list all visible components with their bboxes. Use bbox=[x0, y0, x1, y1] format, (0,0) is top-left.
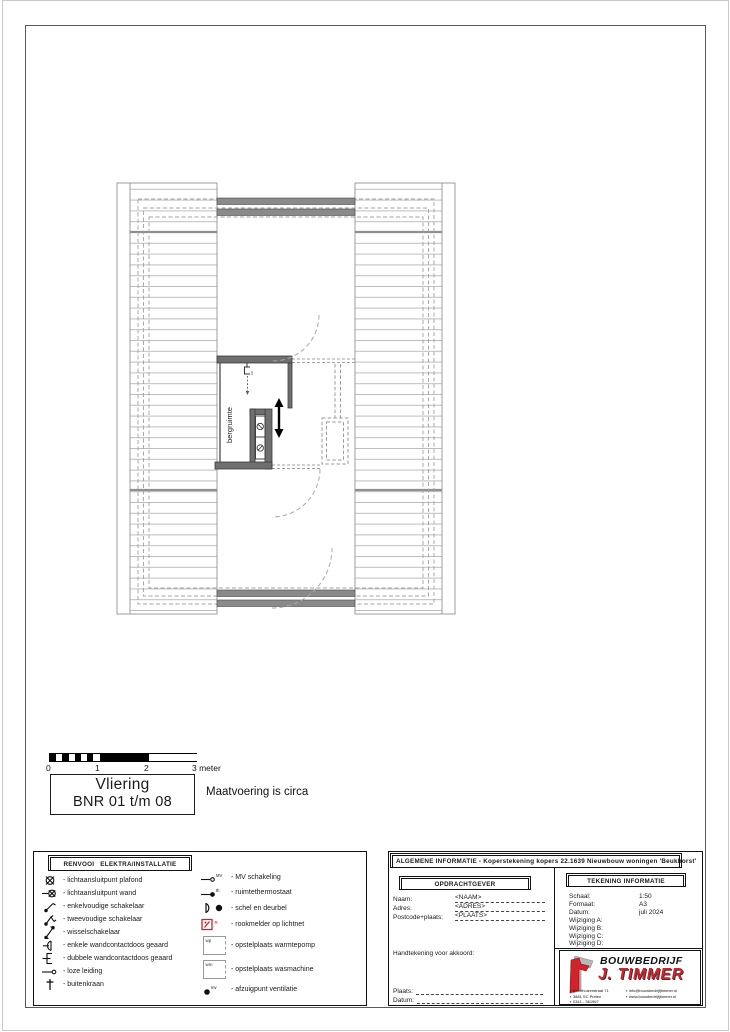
legend-label: - enkelvoudige schakelaar bbox=[63, 903, 144, 910]
scale-tick-2: 2 bbox=[144, 763, 149, 773]
legend-item: - wisselschakelaar bbox=[37, 926, 195, 939]
field-postcode-plaats: Postcode+plaats: <PLAATS> bbox=[393, 912, 549, 921]
doorbell-icon bbox=[197, 901, 231, 915]
legend-item: - lichtaansluitpunt wand bbox=[37, 887, 195, 900]
ceiling-light-icon bbox=[37, 874, 63, 887]
svg-text:MV: MV bbox=[216, 873, 222, 878]
logo-contact-right: info@bouwbedrijfjtimmer.nl www.bouwbedri… bbox=[626, 988, 677, 999]
legend-item: mv - afzuigpunt ventilatie bbox=[197, 981, 365, 998]
tekening-row: Wijziging C: bbox=[569, 933, 639, 940]
tekening-title: TEKENING INFORMATIE bbox=[568, 875, 684, 887]
tekening-row: Schaal: 1:50 bbox=[569, 893, 652, 900]
scale-bar bbox=[49, 753, 197, 762]
legend-item: - schel en deurbel bbox=[197, 900, 365, 916]
tekening-row: Wijziging A: bbox=[569, 917, 639, 924]
logo-name-bottom: J. TIMMER bbox=[598, 966, 684, 984]
two-way-switch-icon bbox=[37, 926, 63, 939]
legend-label: - enkele wandcontactdoos geaard bbox=[63, 942, 168, 949]
legend-item: - enkele wandcontactdoos geaard bbox=[37, 939, 195, 952]
cv-label: cv bbox=[250, 371, 254, 375]
svg-text:th: th bbox=[216, 888, 220, 893]
tekening-header-box: TEKENING INFORMATIE bbox=[566, 873, 686, 887]
legend-label: - opstelplaats warmtepomp bbox=[231, 942, 315, 949]
scale-tick-3: 3 meter bbox=[192, 763, 221, 773]
row-label: Wijziging B: bbox=[569, 925, 639, 932]
right-eaves-strip bbox=[442, 183, 455, 614]
plaats-label: Plaats: bbox=[393, 988, 413, 995]
row-label: Wijziging C: bbox=[569, 933, 639, 940]
drawing-subtitle: BNR 01 t/m 08 bbox=[51, 794, 194, 810]
thermostat-icon: th bbox=[197, 886, 231, 899]
legend-item: R - rookmelder op lichtnet bbox=[197, 916, 365, 933]
legend-item: - loze leiding bbox=[37, 965, 195, 978]
single-switch-icon bbox=[37, 900, 63, 913]
legend-label: - ruimtethermostaat bbox=[231, 889, 292, 896]
field-adres: Adres: <ADRES> bbox=[393, 903, 549, 912]
row-label: Wijziging A: bbox=[569, 917, 639, 924]
legend-box: RENVOOI ELEKTRA/INSTALLATIE - lichtaansl… bbox=[33, 851, 367, 1006]
legend-item: MV - MV schakeling bbox=[197, 870, 365, 885]
opdrachtgever-header-box: OPDRACHTGEVER bbox=[399, 876, 531, 890]
legend-item: - buitenkraan bbox=[37, 978, 195, 991]
legend-label: - wisselschakelaar bbox=[63, 929, 120, 936]
company-logo-box: BOUWBEDRIJF J. TIMMER Voorthuizerstraat … bbox=[559, 950, 701, 1005]
right-roof-panel bbox=[355, 183, 442, 614]
duct-block-dashed bbox=[322, 364, 348, 464]
mv-switch-icon: MV bbox=[197, 871, 231, 884]
legend-item: wm - opstelplaats wasmachine bbox=[197, 957, 365, 981]
double-switch-icon bbox=[37, 913, 63, 926]
titleblock-header: ALGEMENE INFORMATIE - Koperstekening kop… bbox=[392, 855, 680, 868]
empty-conduit-icon bbox=[37, 965, 63, 978]
scale-tick-0: 0 bbox=[46, 763, 51, 773]
scale-tick-1: 1 bbox=[95, 763, 100, 773]
drawing-sheet: bergruimte cv bbox=[0, 0, 730, 1032]
legend-item: - dubbele wandcontactdoos geaard bbox=[37, 952, 195, 965]
titleblock-divider-vertical bbox=[554, 868, 555, 1005]
contact-line: www.bouwbedrijfjtimmer.nl bbox=[626, 994, 677, 1000]
left-eaves-strip bbox=[117, 183, 130, 614]
plaats-row: Plaats: bbox=[393, 987, 543, 995]
row-label: Wijziging D: bbox=[569, 940, 639, 947]
hidden-lines bbox=[272, 359, 355, 469]
tekening-row: Formaat: A3 bbox=[569, 901, 647, 908]
legend-label: - MV schakeling bbox=[231, 874, 281, 881]
socket-earthed-icon bbox=[37, 939, 63, 952]
wall-light-icon bbox=[37, 887, 63, 900]
floor-plan: bergruimte cv bbox=[116, 178, 456, 620]
contact-line: 0341 - 361967 bbox=[570, 999, 609, 1005]
field-value: <ADRES> bbox=[455, 903, 545, 912]
installation-unit bbox=[256, 416, 266, 459]
cv-arrowhead bbox=[246, 391, 249, 395]
wall-bars bbox=[217, 198, 355, 607]
row-label: Datum: bbox=[569, 909, 639, 916]
measurement-note: Maatvoering is circa bbox=[206, 786, 308, 798]
heat-pump-box-icon: wp bbox=[197, 936, 231, 955]
legend-label: - tweevoudige schakelaar bbox=[63, 916, 142, 923]
field-label: Postcode+plaats: bbox=[393, 914, 455, 921]
legend-label: - afzuigpunt ventilatie bbox=[231, 986, 297, 993]
legend-label: - dubbele wandcontactdoos geaard bbox=[63, 955, 172, 962]
logo-contact-left: Voorthuizerstraat 71 3881 SC Putten 0341… bbox=[570, 988, 609, 1005]
outdoor-tap-icon bbox=[37, 978, 63, 991]
contact-line: Voorthuizerstraat 71 bbox=[570, 988, 609, 994]
title-block: ALGEMENE INFORMATIE - Koperstekening kop… bbox=[388, 851, 703, 1006]
smoke-detector-icon: R bbox=[197, 917, 231, 932]
washing-machine-box-icon: wm bbox=[197, 960, 231, 979]
tekening-row: Wijziging D: bbox=[569, 940, 639, 947]
field-label: Adres: bbox=[393, 905, 455, 912]
titleblock-divider-horizontal bbox=[554, 948, 702, 949]
legend-label: - loze leiding bbox=[63, 968, 102, 975]
field-label: Naam: bbox=[393, 896, 455, 903]
legend-label: - buitenkraan bbox=[63, 981, 104, 988]
svg-text:mv: mv bbox=[211, 985, 217, 990]
legend-label: - opstelplaats wasmachine bbox=[231, 966, 314, 973]
row-value: juli 2024 bbox=[639, 909, 663, 916]
plaats-line bbox=[416, 987, 543, 995]
tekening-row: Datum: juli 2024 bbox=[569, 909, 663, 916]
drawing-title: Vliering bbox=[51, 776, 194, 794]
stair-arrow-icon bbox=[275, 398, 284, 438]
row-value: 1:50 bbox=[639, 893, 652, 900]
legend-label: - schel en deurbel bbox=[231, 905, 287, 912]
legend-item: - tweevoudige schakelaar bbox=[37, 913, 195, 926]
datum-row: Datum: bbox=[393, 996, 543, 1004]
legend-item: - enkelvoudige schakelaar bbox=[37, 900, 195, 913]
field-naam: Naam: <NAAM> bbox=[393, 894, 549, 903]
field-value: <PLAATS> bbox=[455, 912, 545, 921]
tekening-row: Wijziging B: bbox=[569, 925, 639, 932]
row-value: A3 bbox=[639, 901, 647, 908]
legend-item: - lichtaansluitpunt plafond bbox=[37, 874, 195, 887]
legend-header: RENVOOI ELEKTRA/INSTALLATIE bbox=[48, 855, 192, 871]
legend-item: th - ruimtethermostaat bbox=[197, 885, 365, 900]
row-label: Schaal: bbox=[569, 893, 639, 900]
svg-text:R: R bbox=[215, 920, 219, 925]
contact-line: info@bouwbedrijfjtimmer.nl bbox=[626, 988, 677, 994]
legend-left-column: - lichtaansluitpunt plafond - lichtaansl… bbox=[37, 874, 195, 991]
signature-label: Handtekening voor akkoord: bbox=[393, 950, 474, 957]
field-value: <NAAM> bbox=[455, 894, 545, 903]
legend-label: - rookmelder op lichtnet bbox=[231, 921, 304, 928]
legend-label: - lichtaansluitpunt plafond bbox=[63, 877, 142, 884]
legend-title: RENVOOI ELEKTRA/INSTALLATIE bbox=[50, 857, 190, 871]
legend-right-column: MV - MV schakeling th - ruimtethermostaa… bbox=[197, 870, 365, 998]
drawing-title-box: Vliering BNR 01 t/m 08 bbox=[50, 774, 195, 815]
double-socket-earthed-icon bbox=[37, 952, 63, 965]
row-label: Formaat: bbox=[569, 901, 639, 908]
room-label: bergruimte bbox=[225, 407, 234, 443]
opdrachtgever-title: OPDRACHTGEVER bbox=[401, 878, 529, 890]
legend-item: wp - opstelplaats warmtepomp bbox=[197, 933, 365, 957]
titleblock-header-box: ALGEMENE INFORMATIE - Koperstekening kop… bbox=[390, 853, 682, 868]
datum-label: Datum: bbox=[393, 997, 414, 1004]
datum-line bbox=[417, 996, 543, 1004]
legend-label: - lichtaansluitpunt wand bbox=[63, 890, 136, 897]
vent-extract-icon: mv bbox=[197, 983, 231, 997]
